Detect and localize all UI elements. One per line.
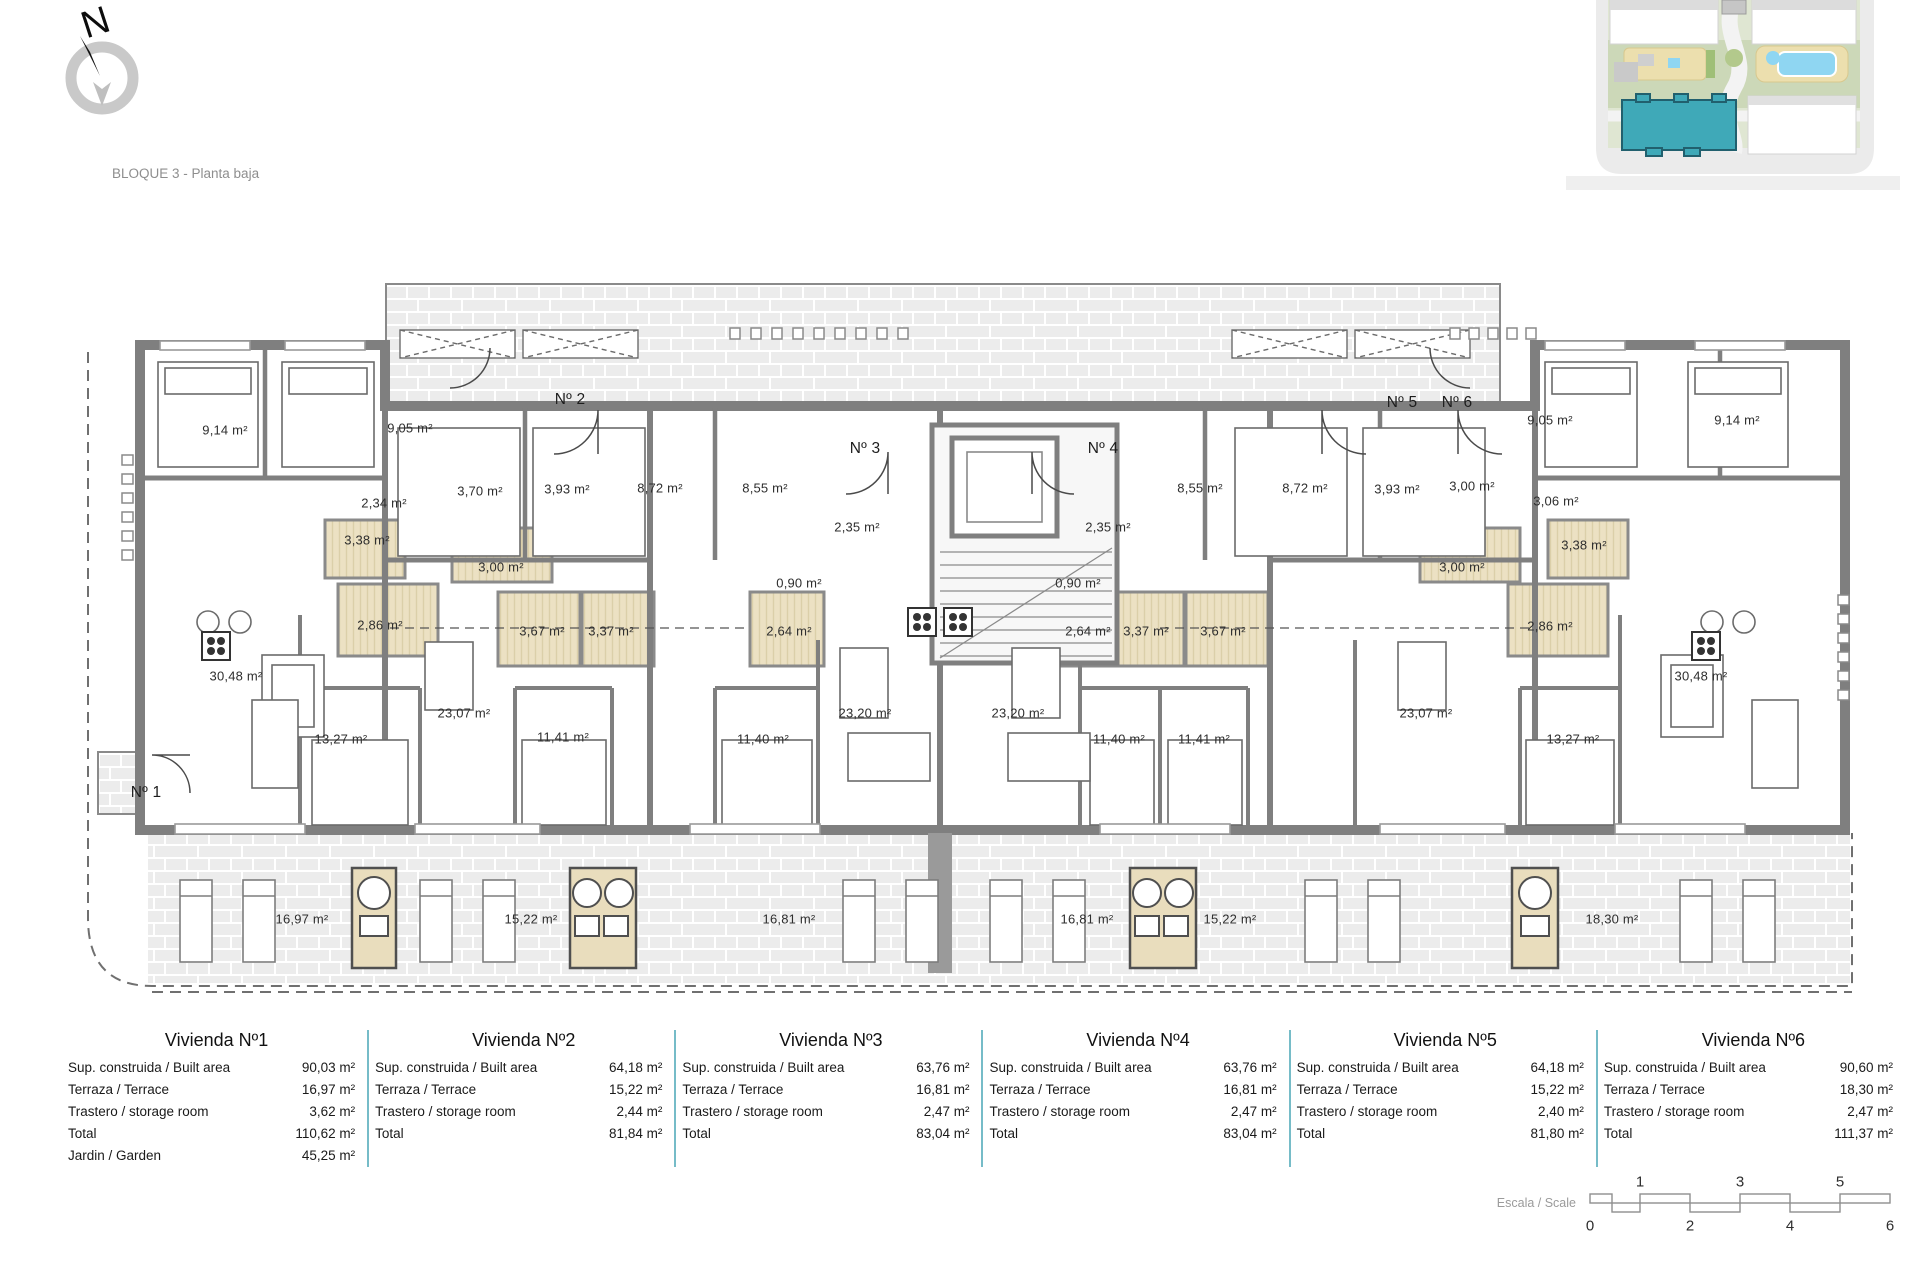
area-row-value: 18,30 m² xyxy=(1840,1079,1893,1101)
area-row: Terraza / Terrace16,97 m² xyxy=(66,1079,367,1101)
area-row-value: 90,60 m² xyxy=(1840,1057,1893,1079)
area-row-label: Sup. construida / Built area xyxy=(375,1057,537,1079)
apartment-table-title: Vivienda Nº4 xyxy=(987,1030,1288,1051)
apartment-table: Vivienda Nº1Sup. construida / Built area… xyxy=(62,1030,369,1167)
room-area-label: 0,90 m² xyxy=(1055,576,1100,591)
scale-number: 3 xyxy=(1736,1174,1744,1191)
apartment-table: Vivienda Nº5Sup. construida / Built area… xyxy=(1291,1030,1598,1167)
area-row: Total81,80 m² xyxy=(1295,1123,1596,1145)
area-row: Trastero / storage room2,40 m² xyxy=(1295,1101,1596,1123)
area-row-label: Trastero / storage room xyxy=(68,1101,209,1123)
area-row: Terraza / Terrace16,81 m² xyxy=(680,1079,981,1101)
room-area-label: 2,86 m² xyxy=(1527,619,1572,634)
room-area-label: 15,22 m² xyxy=(505,912,558,927)
area-row-label: Terraza / Terrace xyxy=(1297,1079,1398,1101)
apartment-table: Vivienda Nº3Sup. construida / Built area… xyxy=(676,1030,983,1167)
area-row: Total110,62 m² xyxy=(66,1123,367,1145)
area-row-value: 3,62 m² xyxy=(309,1101,355,1123)
area-row-label: Sup. construida / Built area xyxy=(68,1057,230,1079)
room-area-label: 2,86 m² xyxy=(357,618,402,633)
scale-label: Escala / Scale xyxy=(1452,1196,1576,1210)
room-area-label: 2,35 m² xyxy=(1085,520,1130,535)
room-area-label: 9,14 m² xyxy=(202,423,247,438)
apartment-table: Vivienda Nº2Sup. construida / Built area… xyxy=(369,1030,676,1167)
area-row: Total83,04 m² xyxy=(987,1123,1288,1145)
floorplan-page: 9,14 m²9,05 m²2,34 m²3,70 m²3,93 m²3,38 … xyxy=(0,0,1920,1280)
area-row-label: Trastero / storage room xyxy=(1297,1101,1438,1123)
unit-number-label: Nº 4 xyxy=(1088,440,1119,458)
room-area-label: 30,48 m² xyxy=(210,669,263,684)
area-row-label: Trastero / storage room xyxy=(989,1101,1130,1123)
area-row-value: 64,18 m² xyxy=(1531,1057,1584,1079)
scale-number: 6 xyxy=(1886,1218,1894,1235)
area-row-value: 111,37 m² xyxy=(1834,1123,1893,1145)
room-area-label: 11,40 m² xyxy=(737,732,789,747)
area-row: Terraza / Terrace18,30 m² xyxy=(1602,1079,1905,1101)
apartment-table-title: Vivienda Nº6 xyxy=(1602,1030,1905,1051)
room-area-label: 23,20 m² xyxy=(839,706,892,721)
north-compass-icon: N xyxy=(40,0,170,135)
room-area-label: 16,81 m² xyxy=(1061,912,1114,927)
apartment-table-title: Vivienda Nº2 xyxy=(373,1030,674,1051)
area-row-label: Sup. construida / Built area xyxy=(682,1057,844,1079)
room-area-label: 8,55 m² xyxy=(1177,481,1222,496)
area-row-label: Total xyxy=(68,1123,97,1145)
scale-bar xyxy=(1580,1188,1900,1222)
area-row-label: Trastero / storage room xyxy=(1604,1101,1745,1123)
area-row-label: Trastero / storage room xyxy=(682,1101,823,1123)
area-row-value: 15,22 m² xyxy=(609,1079,662,1101)
room-area-label: 2,64 m² xyxy=(766,624,811,639)
room-area-label: 3,06 m² xyxy=(1533,494,1578,509)
area-row-label: Sup. construida / Built area xyxy=(989,1057,1151,1079)
area-row-value: 63,76 m² xyxy=(916,1057,969,1079)
area-row: Sup. construida / Built area90,60 m² xyxy=(1602,1057,1905,1079)
room-area-label: 3,00 m² xyxy=(478,560,523,575)
area-row: Terraza / Terrace15,22 m² xyxy=(1295,1079,1596,1101)
area-row: Sup. construida / Built area64,18 m² xyxy=(1295,1057,1596,1079)
area-row-value: 2,47 m² xyxy=(1847,1101,1893,1123)
room-area-label: 2,34 m² xyxy=(361,496,406,511)
area-row: Trastero / storage room2,47 m² xyxy=(1602,1101,1905,1123)
room-area-label: 23,20 m² xyxy=(992,706,1045,721)
room-area-label: 3,93 m² xyxy=(1374,482,1419,497)
area-row-label: Total xyxy=(989,1123,1018,1145)
area-row: Trastero / storage room2,47 m² xyxy=(680,1101,981,1123)
room-area-label: 30,48 m² xyxy=(1675,669,1728,684)
scale-number: 1 xyxy=(1636,1174,1644,1191)
room-area-label: 2,35 m² xyxy=(834,520,879,535)
site-plan-minimap xyxy=(1566,0,1900,190)
area-row-value: 2,47 m² xyxy=(1231,1101,1277,1123)
room-area-label: 3,67 m² xyxy=(1200,624,1245,639)
area-row: Sup. construida / Built area63,76 m² xyxy=(680,1057,981,1079)
area-row: Sup. construida / Built area63,76 m² xyxy=(987,1057,1288,1079)
area-row: Trastero / storage room2,47 m² xyxy=(987,1101,1288,1123)
area-row: Sup. construida / Built area90,03 m² xyxy=(66,1057,367,1079)
area-row-value: 2,40 m² xyxy=(1538,1101,1584,1123)
area-row-label: Terraza / Terrace xyxy=(68,1079,169,1101)
area-row: Trastero / storage room3,62 m² xyxy=(66,1101,367,1123)
area-row-value: 16,81 m² xyxy=(916,1079,969,1101)
room-area-label: 2,64 m² xyxy=(1065,624,1110,639)
area-row-value: 63,76 m² xyxy=(1223,1057,1276,1079)
scale-number: 0 xyxy=(1586,1218,1594,1235)
room-area-label: 3,37 m² xyxy=(1123,624,1168,639)
area-row-value: 16,81 m² xyxy=(1223,1079,1276,1101)
room-area-label: 3,93 m² xyxy=(544,482,589,497)
area-row-value: 15,22 m² xyxy=(1531,1079,1584,1101)
area-row: Total111,37 m² xyxy=(1602,1123,1905,1145)
area-row-value: 16,97 m² xyxy=(302,1079,355,1101)
area-row-label: Total xyxy=(1604,1123,1633,1145)
area-row-value: 90,03 m² xyxy=(302,1057,355,1079)
page-title: BLOQUE 3 - Planta baja xyxy=(112,166,259,181)
room-area-label: 16,97 m² xyxy=(276,912,329,927)
area-row-label: Total xyxy=(375,1123,404,1145)
unit-number-label: Nº 2 xyxy=(555,391,586,409)
scale-number: 2 xyxy=(1686,1218,1694,1235)
room-area-label: 3,67 m² xyxy=(519,624,564,639)
area-row-label: Terraza / Terrace xyxy=(682,1079,783,1101)
area-row: Terraza / Terrace16,81 m² xyxy=(987,1079,1288,1101)
room-area-label: 3,00 m² xyxy=(1439,560,1484,575)
area-row-value: 45,25 m² xyxy=(302,1145,355,1167)
room-area-label: 11,41 m² xyxy=(537,730,589,745)
room-area-label: 18,30 m² xyxy=(1586,912,1639,927)
room-area-label: 16,81 m² xyxy=(763,912,816,927)
area-row-value: 2,47 m² xyxy=(924,1101,970,1123)
room-area-label: 0,90 m² xyxy=(776,576,821,591)
room-area-label: 13,27 m² xyxy=(1547,732,1600,747)
room-area-label: 3,37 m² xyxy=(588,624,633,639)
area-row-value: 2,44 m² xyxy=(617,1101,663,1123)
apartment-area-tables: Vivienda Nº1Sup. construida / Built area… xyxy=(62,1030,1905,1167)
room-area-label: 23,07 m² xyxy=(1400,706,1453,721)
area-row-value: 81,84 m² xyxy=(609,1123,662,1145)
unit-number-label: Nº 3 xyxy=(850,440,881,458)
area-row-label: Total xyxy=(1297,1123,1326,1145)
area-row: Total81,84 m² xyxy=(373,1123,674,1145)
area-row-label: Sup. construida / Built area xyxy=(1604,1057,1766,1079)
unit-number-label: Nº 1 xyxy=(131,784,162,802)
scale-number: 5 xyxy=(1836,1174,1844,1191)
room-area-label: 9,05 m² xyxy=(387,421,432,436)
room-area-label: 8,72 m² xyxy=(1282,481,1327,496)
area-row-value: 83,04 m² xyxy=(1223,1123,1276,1145)
unit-number-label: Nº 5 xyxy=(1387,394,1418,412)
area-row-value: 64,18 m² xyxy=(609,1057,662,1079)
apartment-table-title: Vivienda Nº5 xyxy=(1295,1030,1596,1051)
apartment-table-title: Vivienda Nº1 xyxy=(66,1030,367,1051)
area-row-label: Total xyxy=(682,1123,711,1145)
room-area-label: 3,38 m² xyxy=(1561,538,1606,553)
room-area-label: 23,07 m² xyxy=(438,706,491,721)
room-area-label: 3,00 m² xyxy=(1449,479,1494,494)
area-row: Terraza / Terrace15,22 m² xyxy=(373,1079,674,1101)
area-row-label: Sup. construida / Built area xyxy=(1297,1057,1459,1079)
room-area-label: 15,22 m² xyxy=(1204,912,1257,927)
area-row-value: 83,04 m² xyxy=(916,1123,969,1145)
scale-number: 4 xyxy=(1786,1218,1794,1235)
room-area-label: 8,55 m² xyxy=(742,481,787,496)
room-area-label: 3,70 m² xyxy=(457,484,502,499)
unit-number-label: Nº 6 xyxy=(1442,394,1473,412)
room-area-label: 11,41 m² xyxy=(1178,732,1230,747)
room-area-label: 13,27 m² xyxy=(315,732,368,747)
room-area-label: 9,05 m² xyxy=(1527,413,1572,428)
room-area-label: 8,72 m² xyxy=(637,481,682,496)
area-row: Sup. construida / Built area64,18 m² xyxy=(373,1057,674,1079)
apartment-table: Vivienda Nº4Sup. construida / Built area… xyxy=(983,1030,1290,1167)
apartment-table: Vivienda Nº6Sup. construida / Built area… xyxy=(1598,1030,1905,1167)
area-row-label: Terraza / Terrace xyxy=(375,1079,476,1101)
area-row: Total83,04 m² xyxy=(680,1123,981,1145)
room-area-label: 3,38 m² xyxy=(344,533,389,548)
area-row-label: Terraza / Terrace xyxy=(1604,1079,1705,1101)
room-area-label: 9,14 m² xyxy=(1714,413,1759,428)
minimap-highlighted-block xyxy=(1622,94,1736,156)
room-area-label: 11,40 m² xyxy=(1093,732,1145,747)
area-row-value: 81,80 m² xyxy=(1531,1123,1584,1145)
area-row-label: Trastero / storage room xyxy=(375,1101,516,1123)
area-row-value: 110,62 m² xyxy=(295,1123,355,1145)
area-row-label: Jardin / Garden xyxy=(68,1145,161,1167)
area-row: Jardin / Garden45,25 m² xyxy=(66,1145,367,1167)
apartment-table-title: Vivienda Nº3 xyxy=(680,1030,981,1051)
area-row: Trastero / storage room2,44 m² xyxy=(373,1101,674,1123)
area-row-label: Terraza / Terrace xyxy=(989,1079,1090,1101)
